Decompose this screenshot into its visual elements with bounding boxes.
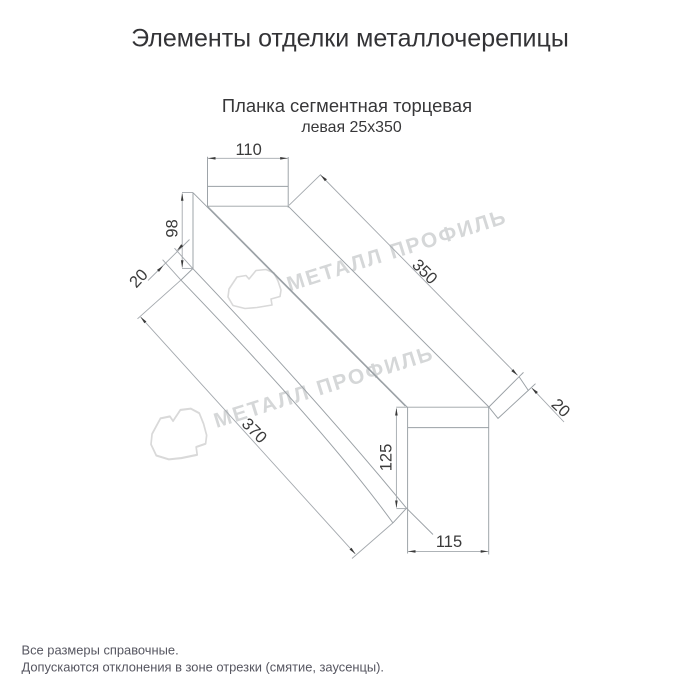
- svg-text:Планка сегментная торцевая: Планка сегментная торцевая: [222, 95, 472, 116]
- svg-text:левая 25х350: левая 25х350: [301, 119, 402, 136]
- svg-text:110: 110: [235, 141, 261, 159]
- svg-text:Все размеры справочные.: Все размеры справочные.: [22, 643, 179, 658]
- svg-text:Элементы отделки металлочерепи: Элементы отделки металлочерепицы: [131, 25, 569, 53]
- svg-text:Допускаются отклонения в зоне: Допускаются отклонения в зоне отрезки (с…: [22, 660, 385, 675]
- svg-text:98: 98: [164, 219, 182, 237]
- svg-text:125: 125: [378, 444, 396, 472]
- svg-text:115: 115: [436, 533, 462, 551]
